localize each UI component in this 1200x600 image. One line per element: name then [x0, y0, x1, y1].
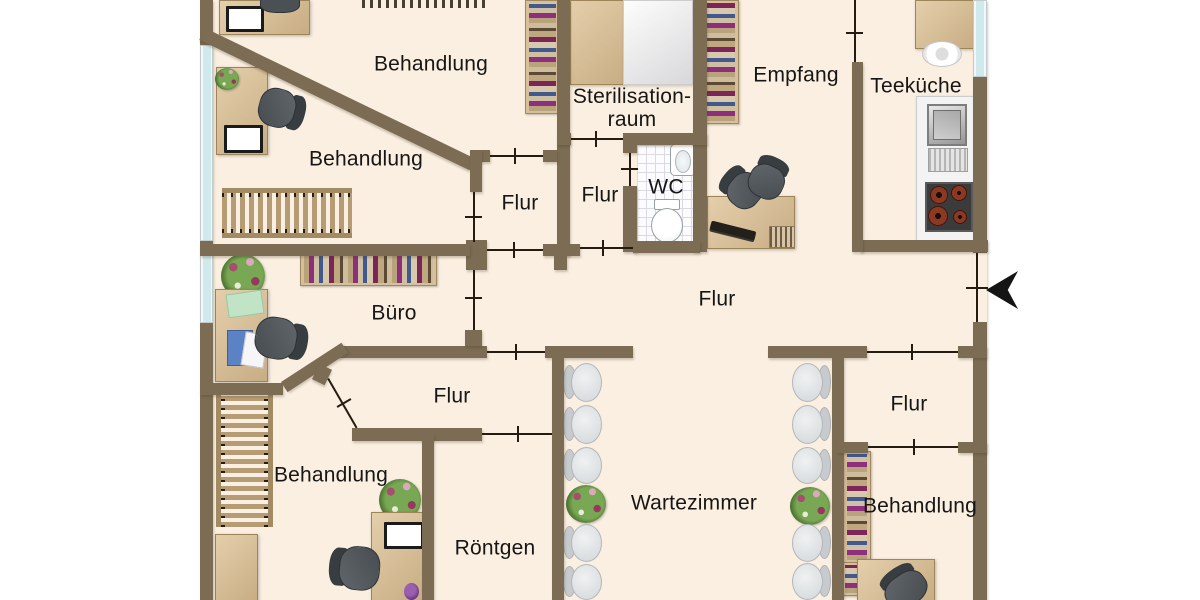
door-tick [846, 32, 863, 34]
wall-segment [852, 62, 863, 252]
door-opening-line [490, 155, 543, 157]
room-label-teekueche: Teeküche [870, 75, 962, 98]
door-tick [911, 344, 913, 360]
waiting-chair [565, 524, 603, 562]
wall-segment [633, 241, 700, 253]
waiting-chair [791, 447, 829, 484]
wall-segment [623, 145, 637, 153]
waiting-chair [791, 563, 829, 600]
door-opening-line [473, 270, 475, 330]
office-chair [327, 542, 383, 594]
stove [925, 182, 973, 232]
exam-bench [222, 188, 352, 238]
wall-segment [337, 346, 487, 358]
window [973, 0, 987, 77]
wall-segment [200, 244, 470, 256]
waiting-chair [791, 524, 829, 562]
kitchen-sink [927, 104, 967, 146]
plate [922, 41, 962, 67]
wall-segment [557, 133, 571, 145]
door-tick [515, 344, 517, 360]
bookshelf [703, 0, 739, 124]
wall-segment [200, 383, 283, 395]
room-label-flur-lower-left: Flur [434, 385, 471, 408]
wall-segment [768, 346, 867, 358]
floor-plan-page: Behandlung Behandlung Sterilisation- rau… [0, 0, 1200, 600]
plant [404, 583, 419, 600]
room-label-behandlung-lower-right: Behandlung [863, 495, 977, 518]
exam-bench [216, 395, 273, 527]
sterilizer-cabinet [623, 0, 693, 85]
exam-bench [362, 0, 490, 8]
wall-segment [837, 442, 868, 453]
door-tick [913, 439, 915, 455]
room-label-behandlung-top: Behandlung [374, 53, 488, 76]
door-opening-line [854, 0, 856, 62]
door-opening-line [487, 249, 543, 251]
room-label-empfang: Empfang [753, 64, 838, 87]
waiting-chair [565, 363, 603, 402]
wall-segment [554, 256, 567, 270]
monitor [224, 125, 263, 153]
room-label-flur-right: Flur [891, 393, 928, 416]
window [200, 45, 213, 241]
office-chair [250, 312, 311, 367]
waiting-chair [791, 405, 829, 444]
entrance-arrow-icon [986, 271, 1018, 309]
room-label-behandlung-upper: Behandlung [309, 148, 423, 171]
wall-segment [623, 133, 707, 145]
office-chair [260, 0, 300, 13]
wall-segment [552, 357, 564, 600]
document-tray [769, 226, 795, 248]
waiting-chair [565, 564, 603, 600]
bookshelf [525, 0, 560, 114]
door-tick [602, 240, 604, 256]
room-label-wartezimmer: Wartezimmer [631, 492, 757, 515]
waiting-chair [791, 363, 829, 402]
wall-segment [352, 428, 482, 441]
room-label-flur-upper-left: Flur [502, 192, 539, 215]
door-tick [465, 216, 482, 218]
monitor [384, 522, 424, 549]
dish-rack [928, 148, 968, 172]
wall-segment [543, 150, 557, 162]
room-label-flur-upper-right: Flur [582, 184, 619, 207]
wall-segment [958, 442, 987, 453]
toilet [651, 199, 683, 243]
cabinet [570, 0, 624, 85]
wall-segment [693, 0, 707, 252]
room-label-flur-central: Flur [699, 288, 736, 311]
room-label-behandlung-lower-left: Behandlung [274, 464, 388, 487]
waiting-chair [565, 447, 603, 484]
door-tick [465, 297, 482, 299]
door-tick [517, 426, 519, 442]
door-tick [966, 287, 988, 289]
door-tick [514, 148, 516, 164]
room-label-roentgen: Röntgen [455, 537, 536, 560]
door-tick [595, 131, 597, 147]
wall-segment [832, 357, 844, 600]
wall-segment [557, 0, 570, 256]
door-opening-line [580, 247, 633, 249]
plant [566, 485, 606, 523]
plant [215, 68, 239, 90]
bookshelf [300, 252, 437, 286]
room-label-sterilisationsraum: Sterilisation- raum [573, 85, 691, 131]
wall-segment [543, 244, 580, 256]
room-label-wc: WC [648, 176, 683, 199]
desk [215, 534, 258, 600]
door-tick [513, 242, 515, 258]
plant [790, 487, 830, 525]
monitor [226, 6, 264, 32]
door-tick [621, 168, 638, 170]
room-label-buero: Büro [371, 302, 416, 325]
wall-segment [470, 150, 482, 192]
door-opening-line [571, 138, 623, 140]
wall-segment [422, 434, 434, 600]
window [200, 255, 213, 323]
wall-segment [465, 330, 482, 346]
wall-segment [860, 240, 988, 252]
wall-segment [958, 346, 987, 358]
waiting-chair [565, 405, 603, 444]
